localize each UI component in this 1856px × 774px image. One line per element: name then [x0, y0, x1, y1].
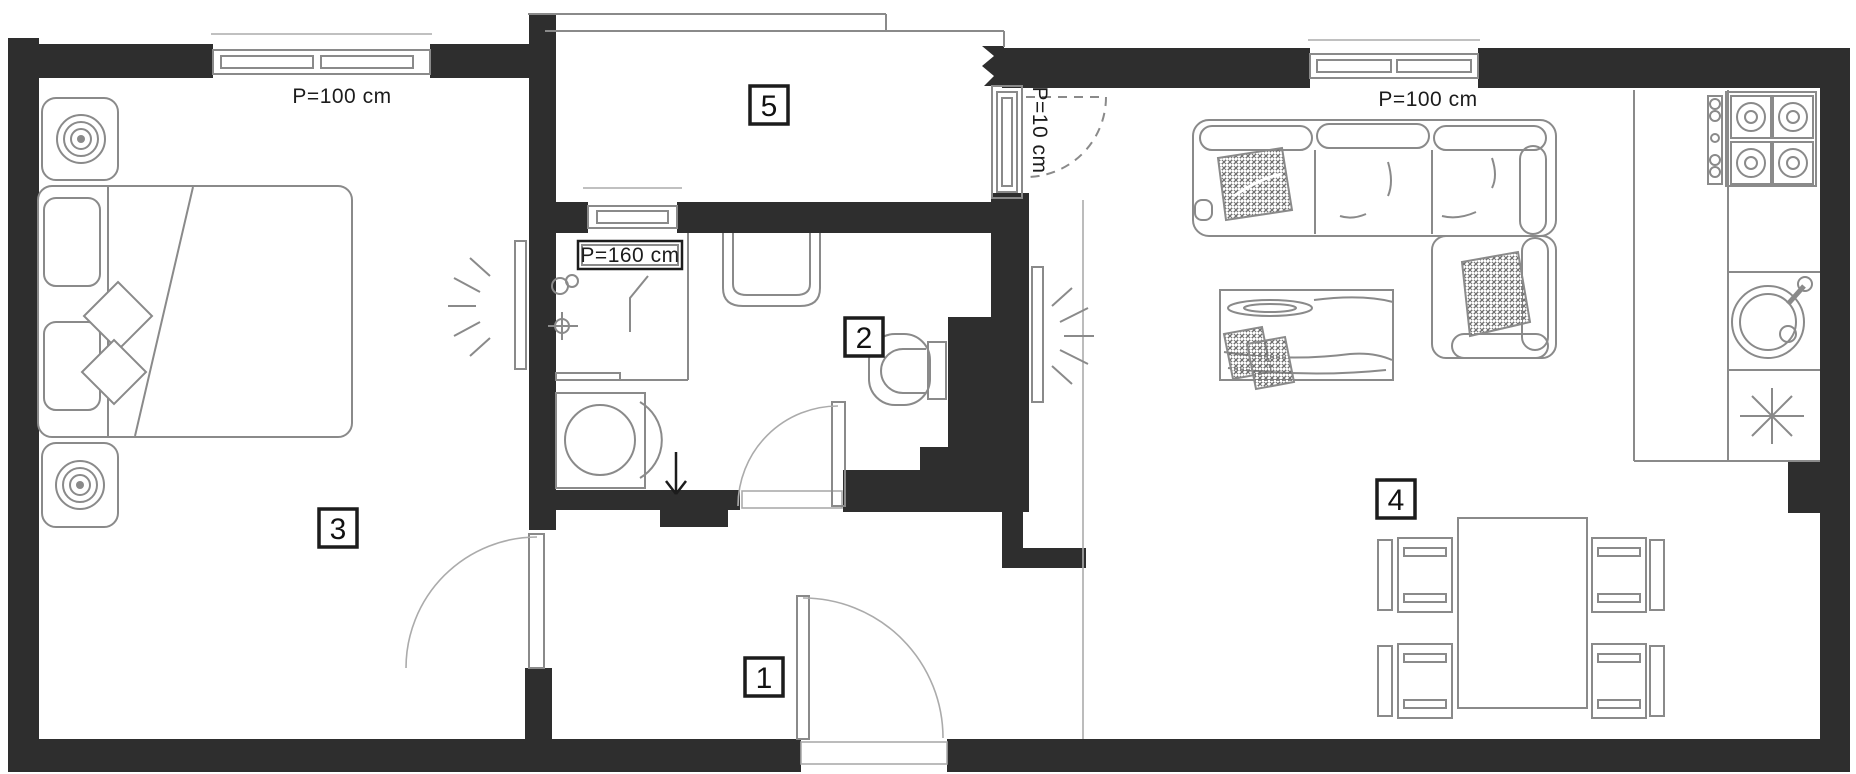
room-label-bedroom-number: 3 — [330, 513, 347, 546]
washing-machine — [556, 393, 645, 488]
lamp-bottom-core — [76, 481, 84, 489]
washing-machine-door — [640, 402, 662, 478]
parapet-label-bathroom-window: P=160 cm — [580, 244, 679, 267]
stove-knob-5 — [1710, 167, 1720, 177]
room-label-balcony-number: 5 — [761, 90, 778, 123]
floor-plan-stage: 12345P=100 cmP=100 cmP=160 cmP=10 cm — [0, 0, 1856, 774]
chair-4-slat-bottom — [1598, 700, 1640, 708]
burner-3-outer — [1737, 149, 1765, 177]
living-window-frame — [1310, 54, 1478, 78]
room-label-bedroom: 3 — [319, 509, 357, 547]
room-label-hallway: 1 — [745, 658, 783, 696]
burner-1-outer — [1737, 103, 1765, 131]
bed-cushion-bottom — [82, 340, 146, 404]
bathroom-top-wall-left — [556, 202, 588, 233]
chair-1-seat — [1398, 538, 1452, 612]
chair-4-slat-top — [1598, 654, 1640, 662]
wall-break-zigzag — [982, 46, 1004, 86]
burner-2-inner — [1787, 111, 1799, 123]
chair-2-slat-top — [1404, 654, 1446, 662]
entry-threshold — [801, 742, 947, 764]
living-radiator-ray-2 — [1060, 308, 1088, 322]
bedroom-radiator-ray-2 — [454, 278, 480, 292]
sofa-ottoman — [1452, 334, 1548, 358]
balcony-door-glass — [1002, 98, 1012, 186]
washing-machine-drum — [565, 405, 635, 475]
living-window-sash-right — [1397, 60, 1471, 72]
parapet-label-bedroom-window: P=100 cm — [292, 85, 391, 108]
shower-tray-edge — [556, 373, 620, 380]
balcony-door-inner — [997, 92, 1017, 192]
bathroom-window-sash — [597, 211, 668, 223]
core-stub-horizontal — [1002, 548, 1086, 568]
chair-3-seat — [1592, 538, 1646, 612]
sofa-back-cushion-1 — [1200, 126, 1312, 150]
room-label-livingroom: 4 — [1377, 480, 1415, 518]
sofa-seam-1 — [1388, 162, 1391, 196]
core-wall-upper — [991, 193, 1029, 317]
geometry-layer — [8, 14, 1850, 772]
floor-plan-drawing: 12345P=100 cmP=100 cmP=160 cmP=10 cm — [0, 0, 1856, 774]
entry-door-leaf — [797, 596, 809, 739]
chair-3-slat-top — [1598, 548, 1640, 556]
stove-knob-2 — [1710, 111, 1720, 121]
coffee-table-grain-1 — [1314, 297, 1393, 302]
bedroom-radiator-ray-4 — [454, 322, 480, 336]
bathroom-sink-inner — [733, 233, 810, 295]
room-label-bathroom-number: 2 — [856, 322, 873, 355]
living-window-sash-left — [1317, 60, 1391, 72]
chair-1-back — [1378, 540, 1392, 610]
room-label-bathroom: 2 — [845, 318, 883, 356]
bottom-wall-right — [947, 739, 1850, 772]
burner-4-inner — [1787, 157, 1799, 169]
bathroom-window-frame — [588, 206, 677, 228]
stove-knob-1 — [1710, 99, 1720, 109]
coffee-table-book-2 — [1247, 337, 1294, 389]
bed-cushion-top — [84, 282, 152, 350]
chair-1-slat-top — [1404, 548, 1446, 556]
bedroom-door-leaf — [529, 534, 544, 668]
chair-4-seat — [1592, 644, 1646, 718]
chair-3-slat-bottom — [1598, 594, 1640, 602]
sofa-back-cushion-2 — [1317, 124, 1429, 148]
bedroom-radiator-ray-1 — [470, 258, 490, 276]
bottom-wall-left — [8, 739, 801, 772]
sofa-seam-4 — [1340, 214, 1366, 218]
label-layer: 12345P=100 cmP=100 cmP=160 cmP=10 cm — [292, 85, 1477, 696]
bathroom-bottom-chunk — [660, 490, 728, 527]
shower-knob — [566, 275, 578, 287]
bathroom-threshold — [742, 491, 842, 508]
sofa-arm-left — [1195, 200, 1212, 220]
sofa-pillow-patterned-2 — [1462, 252, 1530, 336]
parapet-label-living-window: P=100 cm — [1378, 88, 1477, 111]
coffee-table-grain-knot-inner — [1244, 304, 1296, 312]
chair-2-seat — [1398, 644, 1452, 718]
bed-pillow-top — [44, 198, 100, 286]
bedroom-window-sash-right — [321, 56, 413, 68]
room-label-livingroom-number: 4 — [1388, 484, 1405, 517]
top-wall-living-right — [1478, 48, 1850, 88]
room-label-balcony: 5 — [750, 86, 788, 124]
bedroom-radiator-ray-5 — [470, 338, 490, 356]
kitchen-faucet-knob — [1798, 277, 1812, 291]
right-wall — [1820, 48, 1850, 772]
entry-door-swing-arc — [803, 598, 943, 738]
room-label-hallway-number: 1 — [756, 662, 773, 695]
burner-4-outer — [1779, 149, 1807, 177]
left-wall — [8, 38, 39, 772]
burner-1-inner — [1745, 111, 1757, 123]
sofa-side-cushion-1 — [1520, 146, 1546, 234]
dining-table — [1458, 518, 1587, 708]
bedroom-window-sash-left — [221, 56, 313, 68]
burner-2-outer — [1779, 103, 1807, 131]
chair-1-slat-bottom — [1404, 594, 1446, 602]
sofa-seam-2 — [1492, 158, 1495, 188]
kitchen-wall-pier — [1788, 461, 1820, 513]
top-wall-bedroom-right — [430, 44, 530, 78]
chair-4-back — [1650, 646, 1664, 716]
bedroom-partition-wall — [529, 14, 556, 530]
toilet-bowl — [881, 349, 926, 393]
hall-top-wall — [843, 470, 1029, 512]
coffee-table-grain-knot-outer — [1228, 300, 1312, 316]
bedroom-door-stub — [525, 668, 552, 739]
chair-3-back — [1650, 540, 1664, 610]
living-radiator-ray-1 — [1052, 288, 1072, 306]
bedroom-radiator — [515, 241, 526, 369]
bedroom-door-swing-arc — [406, 537, 537, 668]
lamp-top-core — [77, 135, 85, 143]
bed — [38, 186, 352, 437]
core-wall-mid — [948, 317, 1029, 477]
top-wall-bedroom-left — [8, 44, 213, 78]
shower-slope-mark — [630, 276, 648, 332]
chair-2-slat-bottom — [1404, 700, 1446, 708]
sofa-seam-3 — [1442, 212, 1476, 217]
bathroom-top-wall-right — [677, 202, 991, 233]
burner-3-inner — [1745, 157, 1757, 169]
living-radiator-ray-5 — [1052, 366, 1072, 384]
living-radiator-ray-4 — [1060, 350, 1088, 364]
parapet-label-balcony-door: P=10 cm — [1028, 87, 1051, 174]
top-wall-living-left — [1002, 48, 1310, 88]
living-radiator — [1032, 267, 1043, 402]
stove-knob-4 — [1710, 155, 1720, 165]
chair-2-back — [1378, 646, 1392, 716]
stove-knob-3 — [1711, 134, 1719, 142]
